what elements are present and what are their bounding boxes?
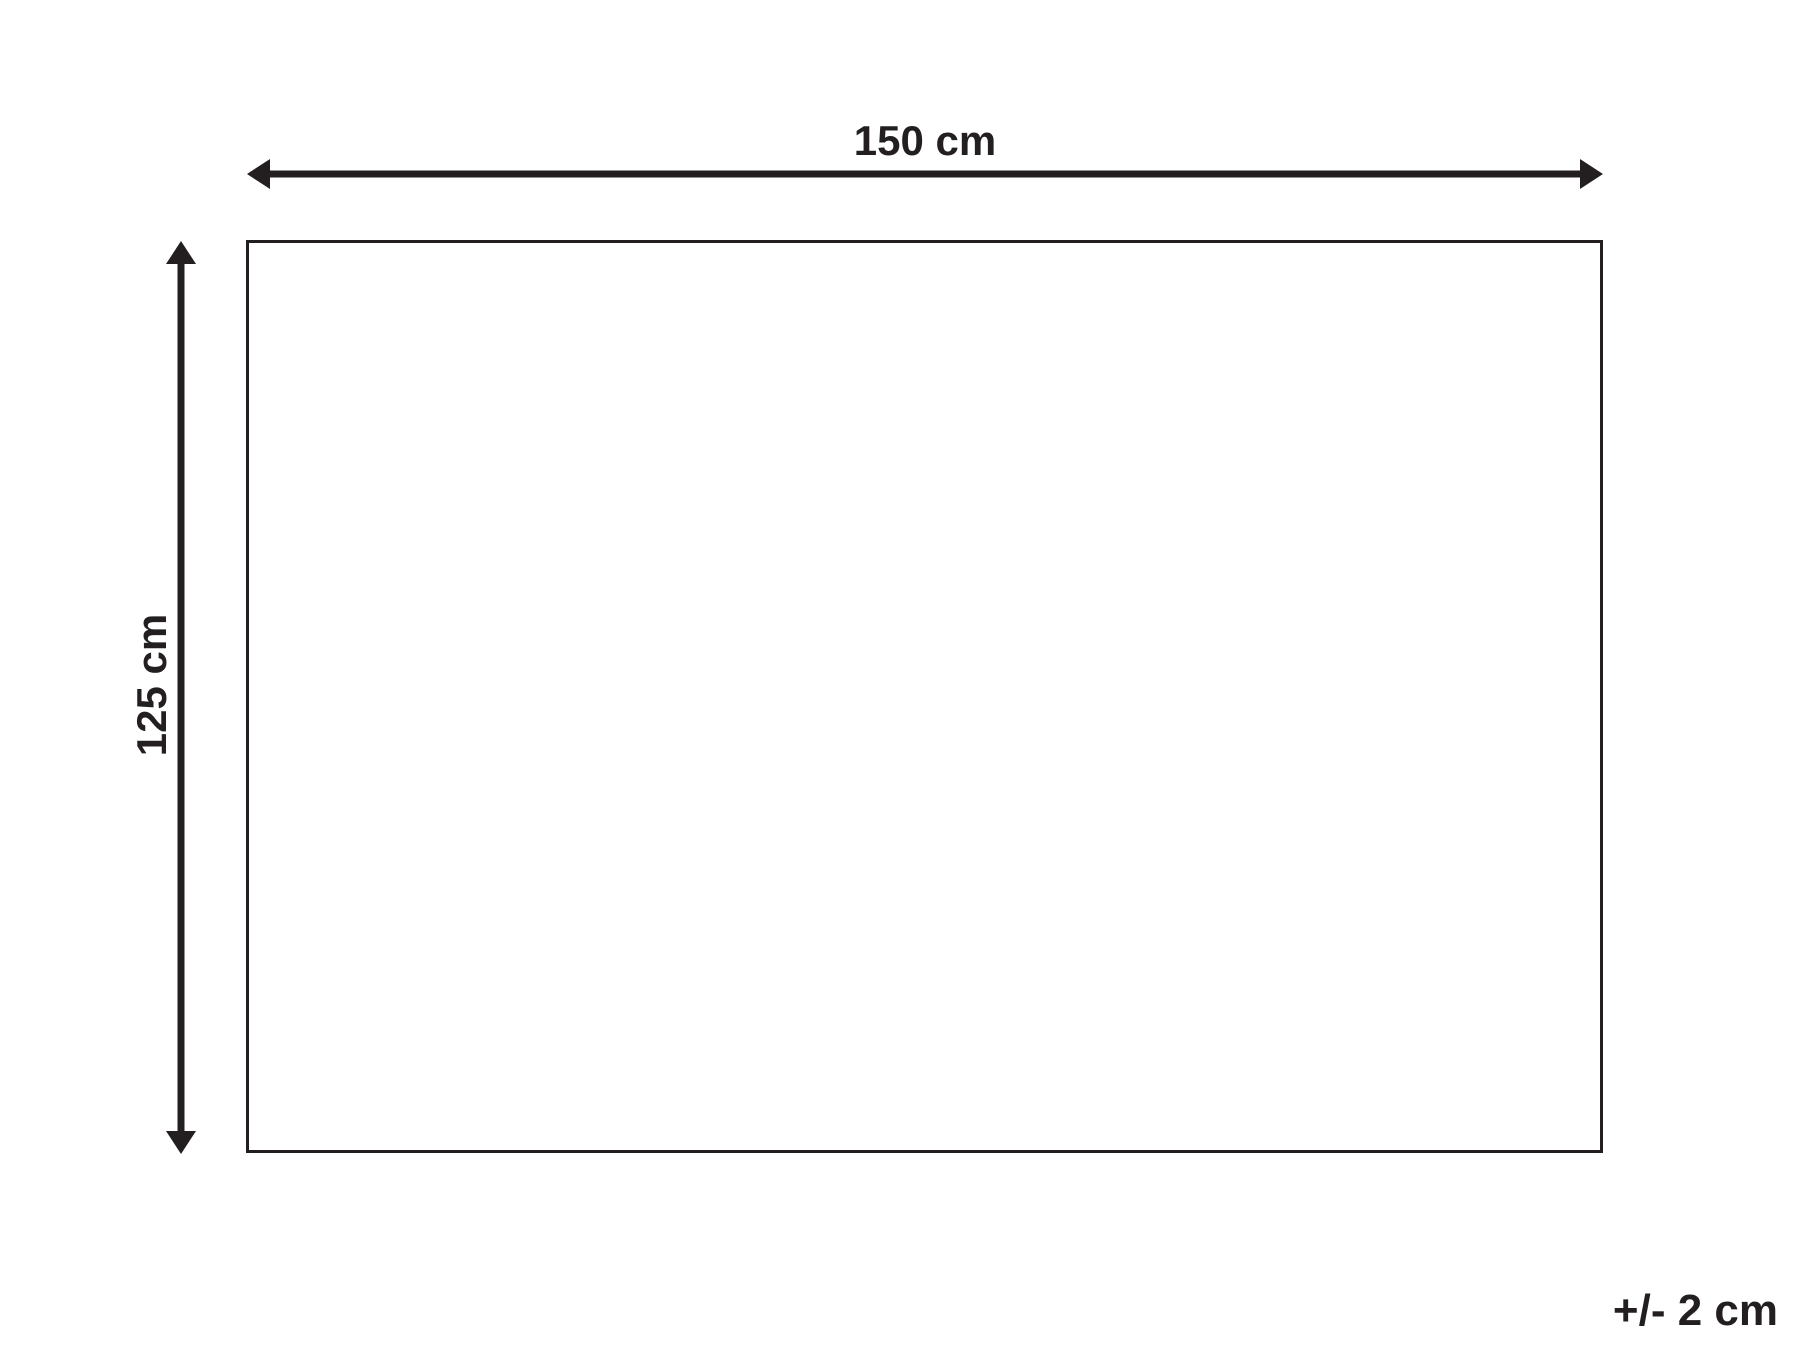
- tolerance-label: +/- 2 cm: [1613, 1286, 1778, 1336]
- width-dimension-label: 150 cm: [247, 117, 1603, 165]
- product-outline-rectangle: [246, 240, 1603, 1153]
- arrowhead-up-icon: [166, 241, 196, 264]
- height-dimension-label: 125 cm: [128, 565, 176, 805]
- arrowhead-down-icon: [166, 1131, 196, 1154]
- dimension-diagram: 150 cm 125 cm +/- 2 cm: [0, 0, 1800, 1350]
